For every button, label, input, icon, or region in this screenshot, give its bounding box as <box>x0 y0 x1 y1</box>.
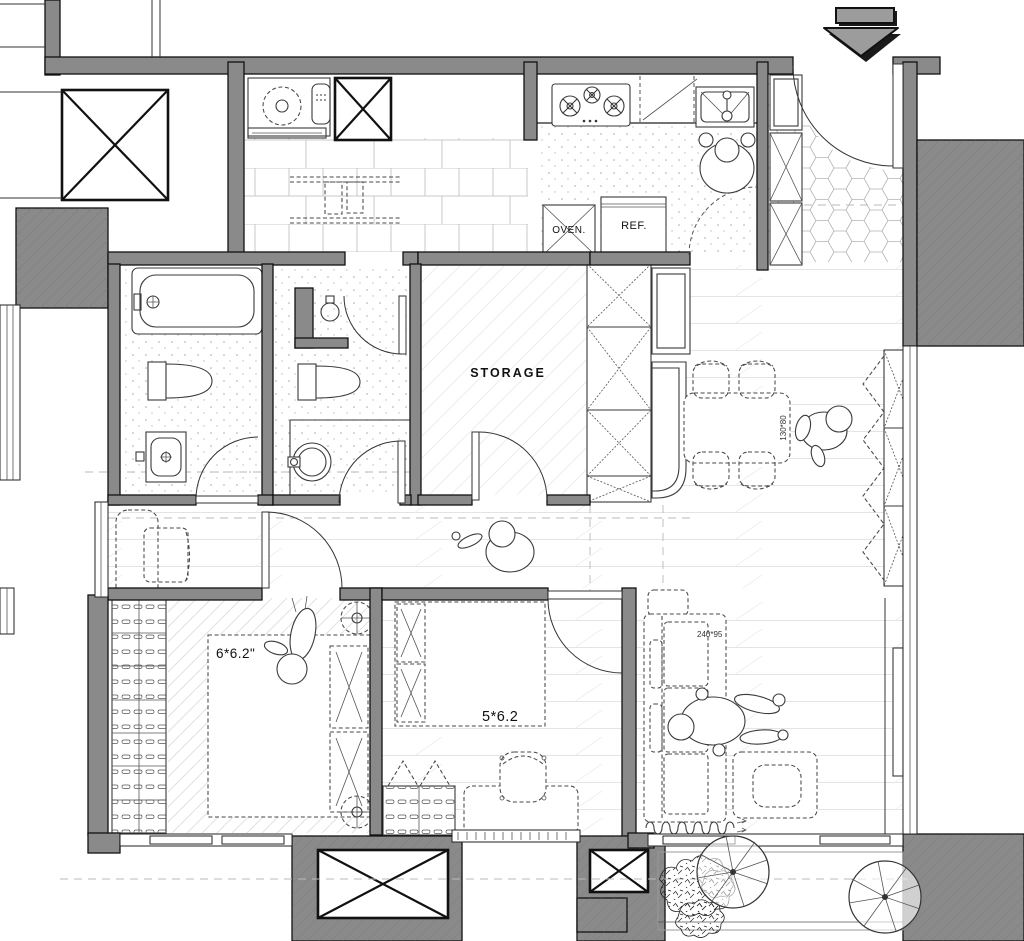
wall-segment <box>410 264 421 505</box>
side-table-icon <box>648 590 688 616</box>
round-plant-icon <box>849 861 921 933</box>
shaft-x-box <box>62 90 168 200</box>
wall-segment <box>273 495 340 505</box>
wall-segment <box>590 252 690 265</box>
wall-segment <box>45 57 793 74</box>
bedroom2-bed-size-label: 5*6.2 <box>482 709 518 725</box>
floor-plan-canvas: STORAGE OVEN. REF. 6*6.2" 5*6.2 130*80 2… <box>0 0 1024 941</box>
foyer-cabinet-icon <box>770 75 802 265</box>
sliding-door-window <box>648 834 903 846</box>
wall-segment <box>108 264 120 505</box>
wall-segment <box>418 495 472 505</box>
bathtub-icon <box>132 268 262 334</box>
wall-segment <box>418 252 590 265</box>
balcony <box>60 836 921 938</box>
person-figure-kitchen <box>699 133 755 193</box>
storage-label: STORAGE <box>470 366 546 380</box>
washing-machine-icon <box>248 78 330 136</box>
floor-plan-page: STORAGE OVEN. REF. 6*6.2" 5*6.2 130*80 2… <box>0 0 1024 941</box>
fridge-label: REF. <box>621 220 647 232</box>
wall-segment <box>903 62 917 346</box>
shaft-x-box <box>335 78 391 140</box>
wall-segment <box>262 264 273 505</box>
window <box>0 305 20 480</box>
wall-segment <box>88 833 120 853</box>
wall-segment <box>228 62 244 254</box>
wall-segment <box>88 595 108 835</box>
wall-segment <box>258 495 273 505</box>
wall-segment <box>295 338 348 348</box>
wall-segment <box>108 252 345 265</box>
wall-segment <box>757 62 768 270</box>
wall-segment <box>382 588 548 600</box>
wall-segment <box>524 62 537 140</box>
bedroom2-bed-icon <box>395 602 545 726</box>
sofa-size-label: 240*95 <box>697 630 723 639</box>
tall-cabinet-icon <box>587 264 651 502</box>
shaft-x-box <box>590 850 648 892</box>
wall-segment <box>547 495 590 505</box>
kitchen-sink-icon <box>696 87 754 127</box>
master-wardrobe-icon <box>112 600 166 833</box>
sideboard-counter-icon <box>652 362 686 498</box>
ottoman-icon <box>733 752 817 818</box>
window <box>0 588 14 634</box>
round-plant-icon <box>697 836 769 908</box>
dining-table-size-label: 130*80 <box>779 415 788 441</box>
window <box>452 830 580 842</box>
oven-label: OVEN. <box>552 225 586 236</box>
wall-segment <box>622 588 636 838</box>
master-bed-size-label: 6*6.2" <box>216 646 255 661</box>
wall-segment <box>108 588 262 600</box>
utility-tile-floor <box>244 138 528 252</box>
storage-floor <box>420 265 587 495</box>
shaft-x-box <box>318 850 448 918</box>
window <box>903 346 917 834</box>
wall-segment <box>403 252 418 265</box>
column-hatch <box>16 208 108 308</box>
desk-chair-icon <box>500 752 546 802</box>
entry-arrow-icon <box>824 8 901 62</box>
upper-cabinet-icon <box>652 268 690 354</box>
column-hatch <box>903 834 1024 941</box>
window <box>120 834 292 846</box>
wall-segment <box>370 588 382 835</box>
stove-icon <box>552 84 630 126</box>
window <box>95 502 108 597</box>
wall-segment <box>108 495 196 505</box>
column-hatch <box>917 140 1024 346</box>
